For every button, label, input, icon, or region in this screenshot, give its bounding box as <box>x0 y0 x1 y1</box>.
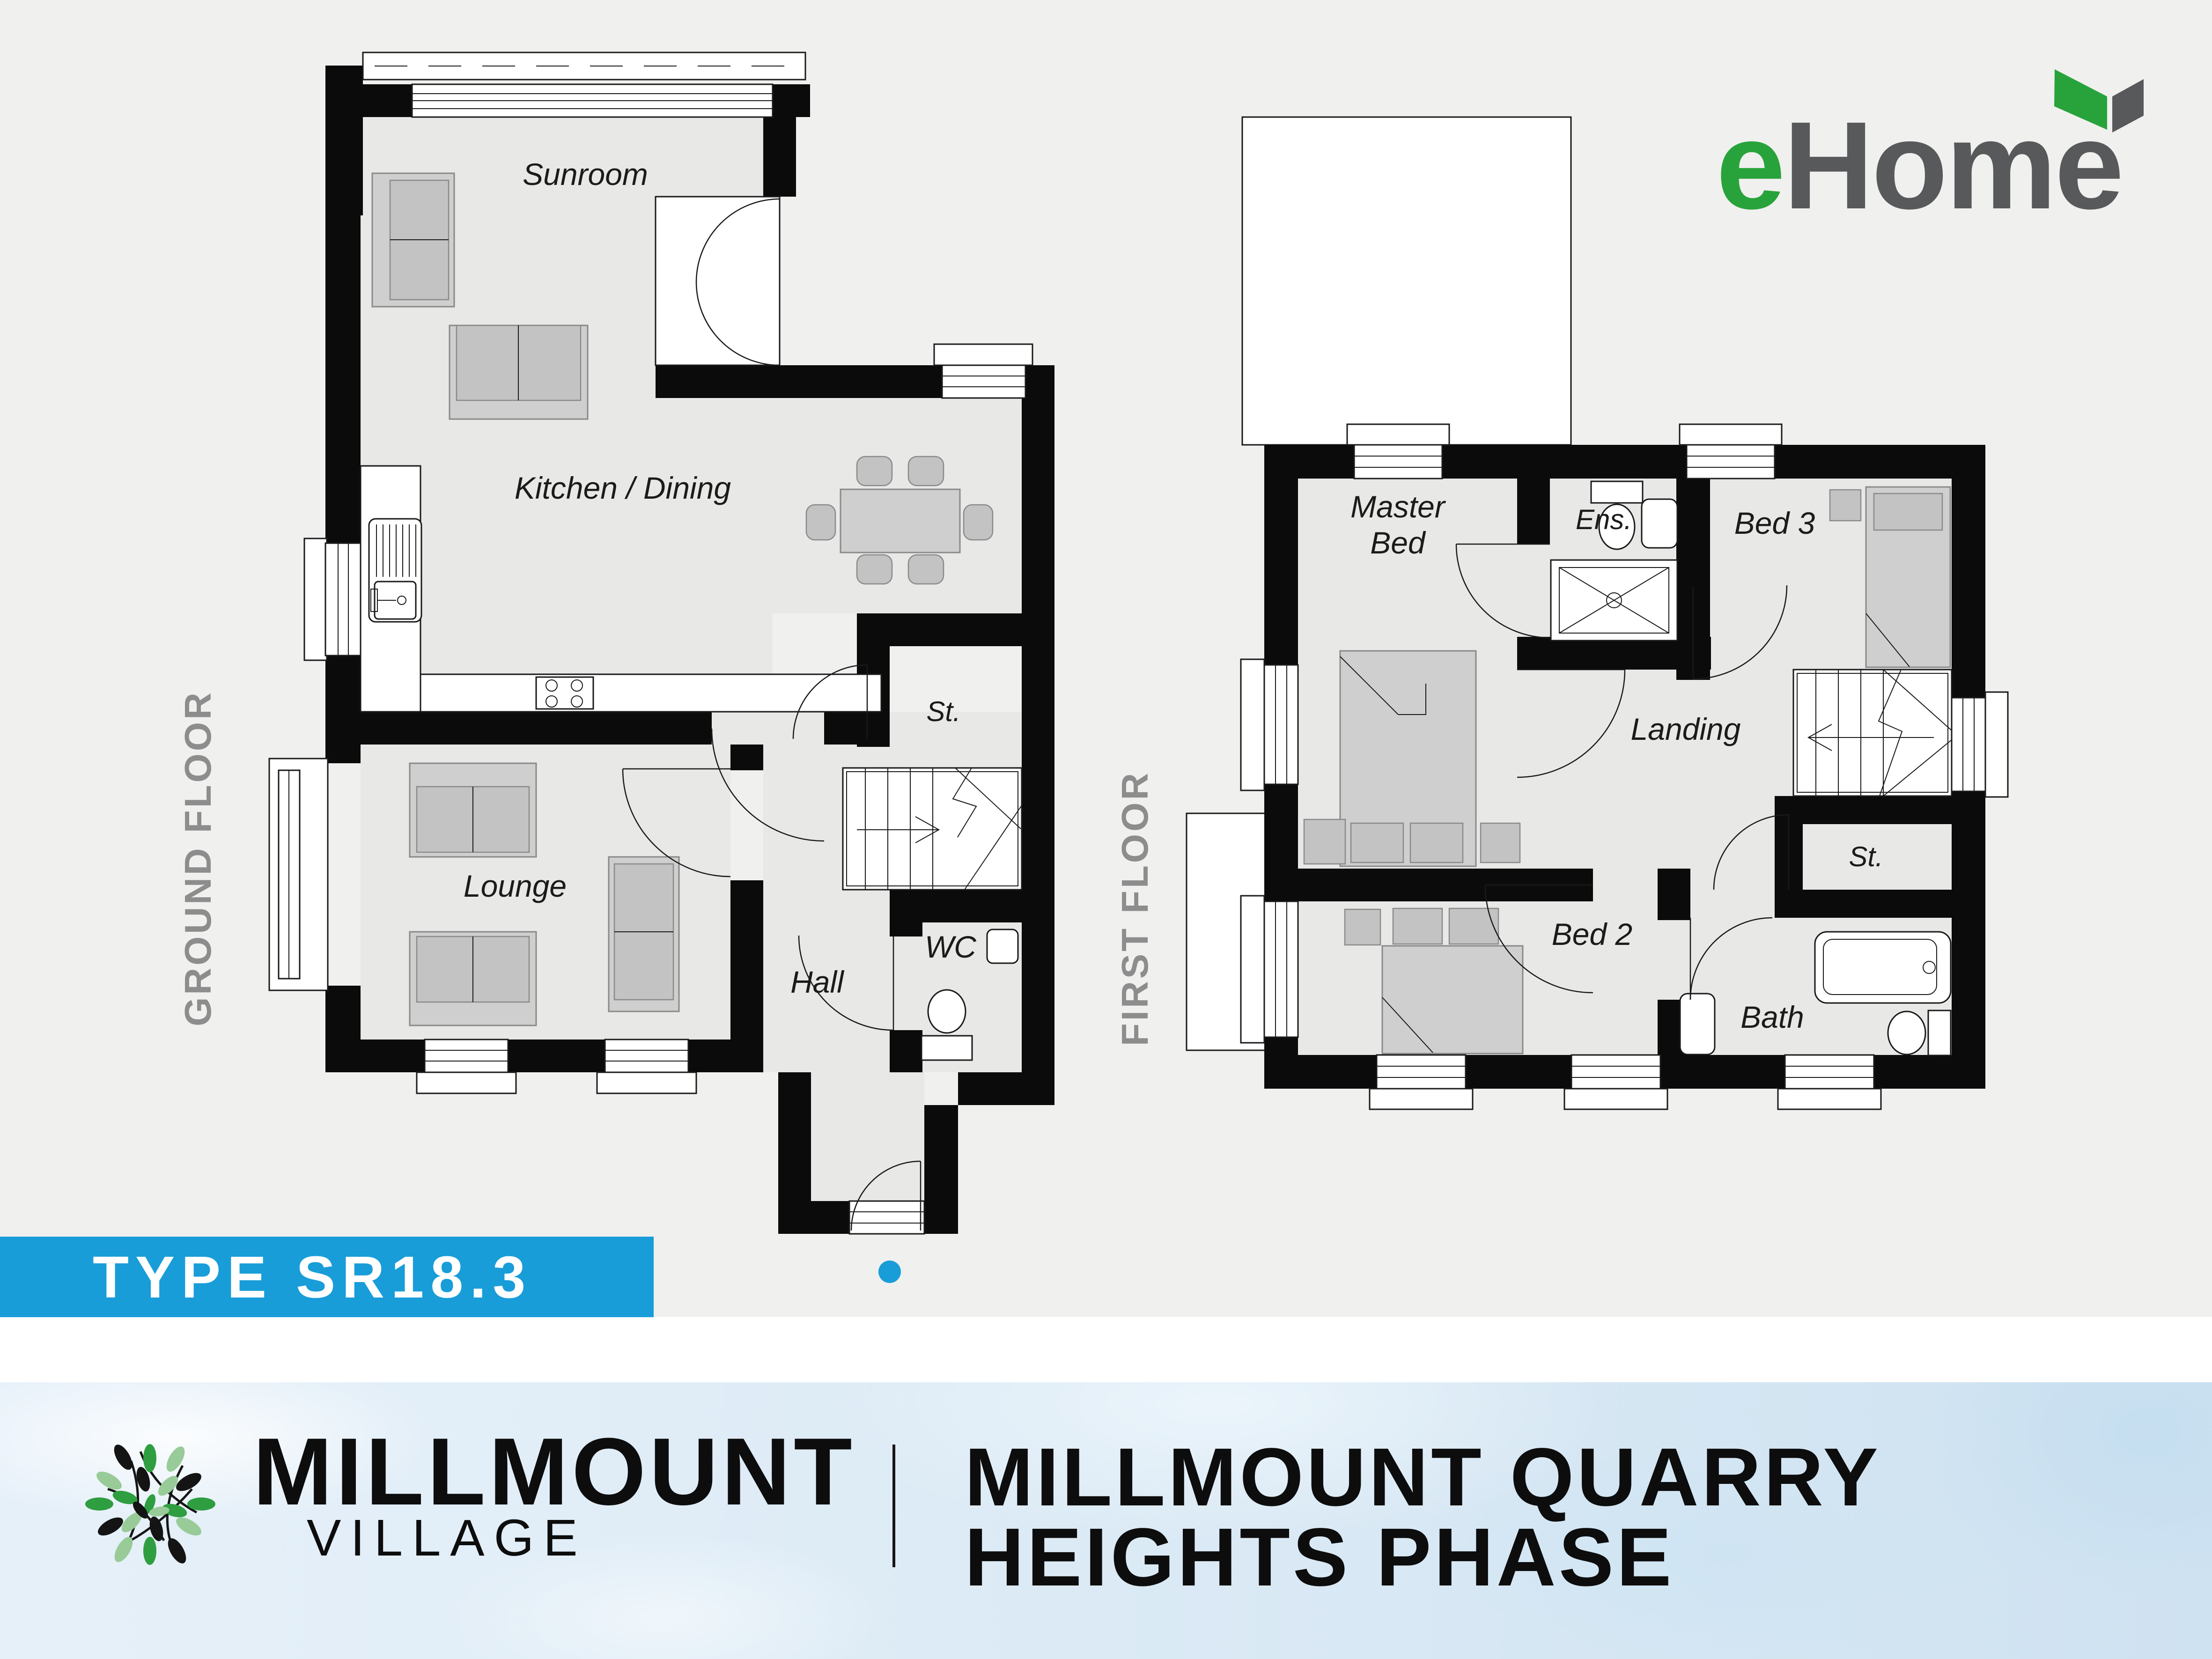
first-floor-plan: Master Bed Ens. Bed 3 Landing St. Bed 2 … <box>1161 94 2042 1133</box>
entrance-marker-dot <box>878 1261 901 1283</box>
brand-name: MILLMOUNT <box>253 1424 855 1519</box>
footer-divider <box>892 1445 895 1567</box>
bath-sink <box>1680 994 1715 1054</box>
stairs-first <box>1793 670 1952 796</box>
development-name-line2: HEIGHTS PHASE <box>965 1518 1881 1598</box>
wc-toilet <box>928 990 966 1033</box>
room-label-lounge: Lounge <box>464 869 567 903</box>
brochure-page: TYPE SR18.3 eHome GROUND FLOOR FIRST FLO… <box>0 0 2212 1659</box>
sunroom-french-doors <box>656 197 780 365</box>
ensuite-toilet-tank <box>1591 481 1643 503</box>
room-label-bed3: Bed 3 <box>1734 506 1815 540</box>
bed2-bed <box>1382 946 1523 1054</box>
kitchen-hall-opening <box>712 712 824 745</box>
kitchen-counter-bottom <box>420 674 881 712</box>
room-label-hall: Hall <box>790 965 845 999</box>
ensuite-sink <box>1642 499 1677 548</box>
brand-subtitle: VILLAGE <box>307 1512 587 1564</box>
first-floor-title: FIRST FLOOR <box>1113 771 1157 1046</box>
room-label-sunroom: Sunroom <box>523 157 648 192</box>
stairs-ground <box>843 768 1022 890</box>
room-label-ensuite: Ens. <box>1576 504 1632 535</box>
bath-toilet <box>1888 1011 1925 1054</box>
room-label-kitchen-dining: Kitchen / Dining <box>515 471 731 505</box>
white-band <box>0 1317 2212 1382</box>
dining-table <box>841 489 960 553</box>
bathtub <box>1815 932 1951 1003</box>
development-name: MILLMOUNT QUARRY HEIGHTS PHASE <box>965 1438 1881 1598</box>
room-label-master-line1: Master <box>1350 489 1446 524</box>
room-label-wc: WC <box>925 929 977 964</box>
ground-floor-title: GROUND FLOOR <box>177 690 220 1026</box>
logo-leaves <box>85 1442 215 1566</box>
room-label-master-line2: Bed <box>1370 525 1426 560</box>
room-label-landing: Landing <box>1631 712 1741 746</box>
room-label-storage-ground: St. <box>926 696 960 727</box>
ground-floor-plan: Sunroom Kitchen / Dining St. Lounge Hall… <box>253 28 1096 1288</box>
sunroom-roof-outline <box>1242 117 1571 445</box>
wc-sink <box>987 929 1018 963</box>
room-label-bath: Bath <box>1740 1000 1804 1034</box>
room-label-bed2: Bed 2 <box>1552 917 1632 951</box>
room-label-storage-first: St. <box>1849 841 1883 872</box>
porch-floor <box>811 1072 924 1201</box>
millmount-leaf-logo <box>70 1423 239 1592</box>
development-name-line1: MILLMOUNT QUARRY <box>965 1438 1881 1518</box>
